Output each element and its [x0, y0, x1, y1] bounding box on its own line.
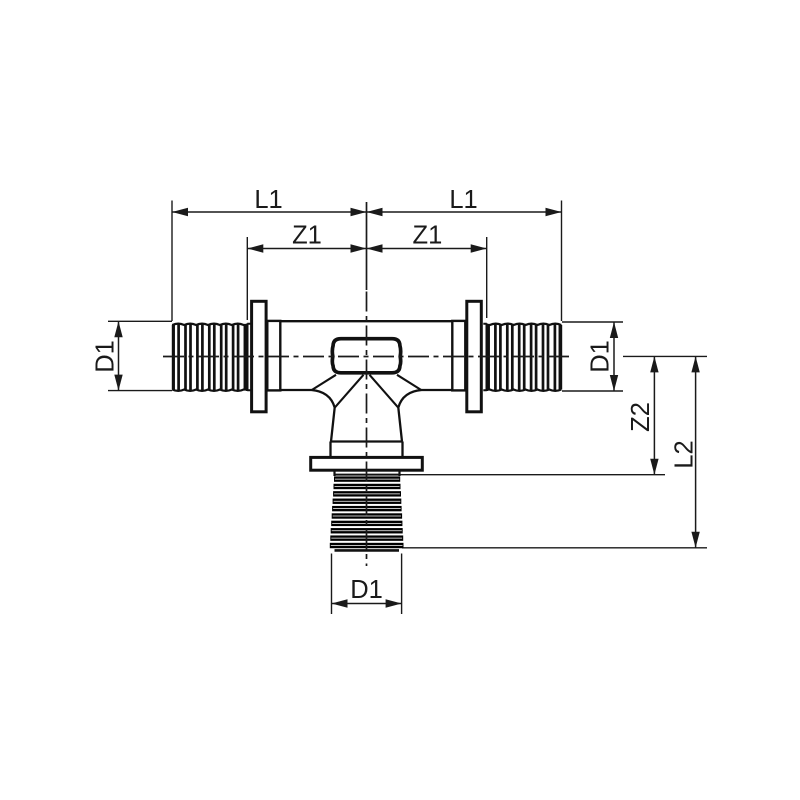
svg-text:D1: D1 — [92, 340, 120, 373]
svg-text:Z2: Z2 — [627, 402, 655, 432]
svg-text:D1: D1 — [350, 576, 383, 604]
svg-text:L1: L1 — [449, 186, 477, 214]
svg-text:D1: D1 — [587, 340, 615, 373]
svg-text:L1: L1 — [254, 186, 282, 214]
svg-text:Z1: Z1 — [292, 222, 322, 250]
svg-text:L2: L2 — [671, 440, 699, 468]
svg-text:Z1: Z1 — [413, 222, 443, 250]
